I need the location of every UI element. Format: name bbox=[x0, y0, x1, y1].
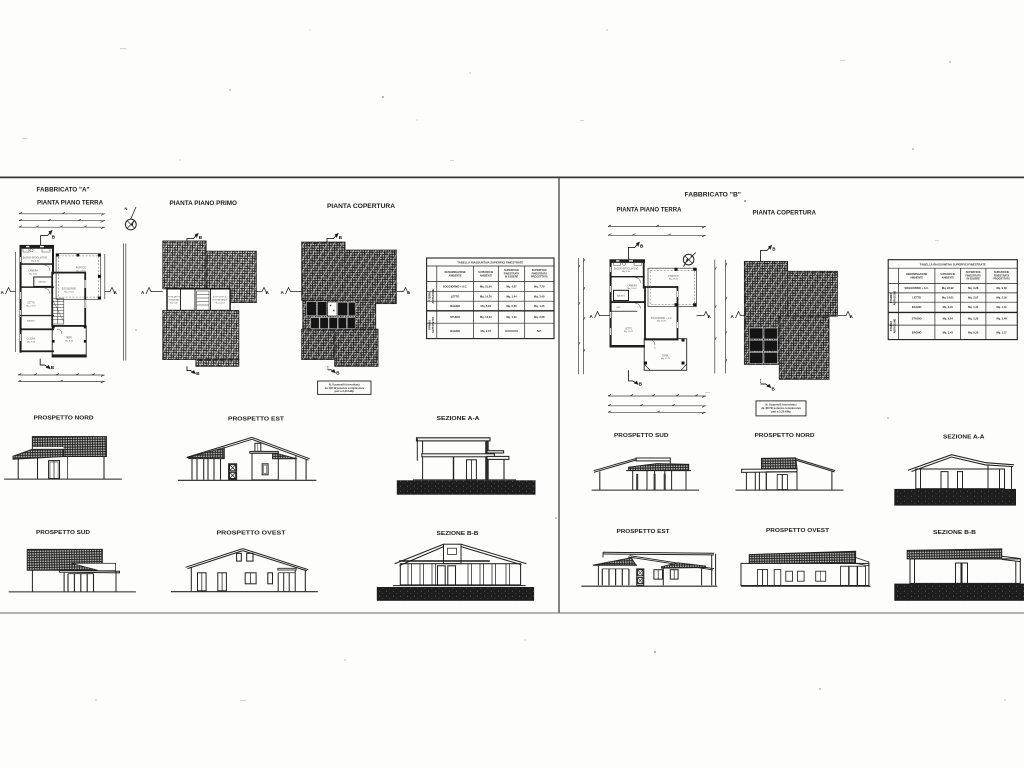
svg-text:LETTO: LETTO bbox=[625, 328, 633, 330]
svg-text:Mq. 1,45: Mq. 1,45 bbox=[534, 304, 545, 308]
svg-text:B: B bbox=[336, 370, 340, 375]
svg-text:Mq. 9,80: Mq. 9,80 bbox=[29, 273, 38, 275]
svg-text:Mq. 2,07: Mq. 2,07 bbox=[481, 329, 492, 333]
svg-text:Mq. 4,46: Mq. 4,46 bbox=[622, 271, 631, 273]
svg-text:PROSPETTO SUD: PROSPETTO SUD bbox=[36, 530, 90, 536]
svg-text:N. 8 pannelli fotovoltaici: N. 8 pannelli fotovoltaici bbox=[766, 403, 797, 407]
svg-text:Mq. 21,04: Mq. 21,04 bbox=[64, 291, 74, 293]
svg-text:Mq. 5,22: Mq. 5,22 bbox=[481, 304, 492, 308]
svg-text:B: B bbox=[196, 371, 200, 376]
svg-text:Mq. 2,40: Mq. 2,40 bbox=[534, 294, 545, 298]
svg-text:PROSPETTO SUD: PROSPETTO SUD bbox=[614, 433, 669, 439]
svg-text:B: B bbox=[52, 235, 56, 240]
svg-text:PORTICO: PORTICO bbox=[76, 268, 87, 270]
svg-text:ABITAZIONE: ABITAZIONE bbox=[893, 290, 896, 305]
svg-text:TERR.: TERR. bbox=[66, 338, 73, 340]
svg-text:A: A bbox=[141, 290, 145, 295]
svg-text:SPOGLIATOIO: SPOGLIATOIO bbox=[166, 296, 181, 299]
svg-text:PIANTA COPERTURA: PIANTA COPERTURA bbox=[753, 210, 817, 217]
svg-text:Mq. 1,17: Mq. 1,17 bbox=[996, 330, 1007, 334]
svg-text:SEZIONE B-B: SEZIONE B-B bbox=[933, 530, 976, 536]
svg-text:NON ABITABILE: NON ABITABILE bbox=[166, 299, 182, 302]
svg-text:A: A bbox=[266, 290, 270, 295]
svg-text:AMBIENTI: AMBIENTI bbox=[942, 276, 954, 279]
svg-text:BAGNO: BAGNO bbox=[450, 304, 460, 308]
svg-text:SOGGIORNO: SOGGIORNO bbox=[62, 289, 77, 291]
svg-text:SEZIONE B-B: SEZIONE B-B bbox=[437, 531, 479, 537]
svg-text:pari a 3,20 kWp: pari a 3,20 kWp bbox=[771, 409, 791, 413]
svg-text:CAMERA: CAMERA bbox=[627, 284, 637, 287]
svg-text:Mq. 1,19: Mq. 1,19 bbox=[506, 315, 517, 319]
svg-text:SOGGIORNO + A.C.: SOGGIORNO + A.C. bbox=[651, 317, 673, 320]
svg-text:A: A bbox=[407, 290, 411, 295]
svg-text:A: A bbox=[1, 290, 5, 295]
svg-text:FABBRICATO "B": FABBRICATO "B" bbox=[685, 192, 742, 199]
svg-text:Mq. 14,01: Mq. 14,01 bbox=[627, 288, 637, 290]
svg-text:Mq. 2,07: Mq. 2,07 bbox=[968, 296, 979, 300]
svg-text:Mq. 23,00: Mq. 23,00 bbox=[76, 270, 86, 272]
svg-text:Mq. 14,01: Mq. 14,01 bbox=[624, 331, 634, 333]
svg-text:Mq. 2,16: Mq. 2,16 bbox=[996, 296, 1007, 300]
svg-text:Mq. 1,41: Mq. 1,41 bbox=[996, 305, 1007, 309]
svg-text:Mq. 9,04: Mq. 9,04 bbox=[943, 317, 954, 321]
svg-text:Mq. 23,92: Mq. 23,92 bbox=[942, 286, 954, 290]
svg-text:B: B bbox=[772, 247, 776, 252]
svg-text:NON ABITABILE: NON ABITABILE bbox=[213, 299, 229, 302]
svg-text:IN ESSERE: IN ESSERE bbox=[505, 276, 519, 279]
svg-text:Mq. 9,40: Mq. 9,40 bbox=[170, 302, 179, 304]
svg-text:A: A bbox=[850, 314, 854, 319]
svg-text:Mq. 0,78: Mq. 0,78 bbox=[506, 304, 517, 308]
svg-text:N: N bbox=[125, 206, 128, 211]
svg-text:Mq. 1,44: Mq. 1,44 bbox=[506, 294, 517, 298]
svg-text:Mq. 4,46: Mq. 4,46 bbox=[943, 305, 954, 309]
svg-text:SOTTOTETTO: SOTTOTETTO bbox=[432, 317, 435, 333]
svg-text:da 400 W potenza complessiva: da 400 W potenza complessiva bbox=[761, 406, 801, 410]
svg-text:Mq. 1,41: Mq. 1,41 bbox=[968, 305, 979, 309]
svg-text:BAGNO: BAGNO bbox=[27, 320, 35, 323]
svg-text:CUCINA: CUCINA bbox=[27, 338, 36, 341]
svg-text:FABBRICATO "A": FABBRICATO "A" bbox=[37, 187, 90, 194]
svg-text:Mq. 4,30: Mq. 4,30 bbox=[31, 260, 40, 262]
svg-text:Mq. 14,01: Mq. 14,01 bbox=[942, 296, 954, 300]
svg-text:A: A bbox=[114, 290, 118, 295]
svg-text:BAGNO: BAGNO bbox=[450, 329, 460, 333]
svg-text:PIANTA PIANO PRIMO: PIANTA PIANO PRIMO bbox=[170, 200, 238, 207]
svg-text:PROSPETTO NORD: PROSPETTO NORD bbox=[34, 416, 94, 422]
svg-text:PROSPETTO NORD: PROSPETTO NORD bbox=[755, 433, 815, 439]
svg-text:Mq. 4,07: Mq. 4,07 bbox=[506, 285, 517, 289]
svg-text:AMBIENTE: AMBIENTE bbox=[910, 276, 923, 279]
svg-text:PROSPETTO EST: PROSPETTO EST bbox=[228, 417, 285, 423]
svg-text:Mq. 7,79: Mq. 7,79 bbox=[534, 285, 545, 289]
svg-text:SOGGIORNO + A.C.: SOGGIORNO + A.C. bbox=[905, 286, 930, 290]
svg-text:PROGETTATA: PROGETTATA bbox=[531, 276, 548, 279]
svg-text:BAGNO-SPOGLIATOIO: BAGNO-SPOGLIATOIO bbox=[23, 257, 48, 260]
svg-text:BAGNO: BAGNO bbox=[912, 330, 922, 334]
svg-text:A: A bbox=[281, 290, 285, 295]
svg-text:B: B bbox=[51, 365, 55, 370]
svg-text:B: B bbox=[640, 243, 644, 248]
svg-text:STUDIO: STUDIO bbox=[912, 317, 922, 321]
svg-text:BAGNO: BAGNO bbox=[617, 294, 625, 297]
svg-text:TERR.: TERR. bbox=[662, 355, 669, 357]
svg-text:Mq. 12,70: Mq. 12,70 bbox=[661, 358, 671, 360]
svg-text:CAMERA: CAMERA bbox=[28, 270, 38, 273]
svg-text:PIANTA PIANO TERRA: PIANTA PIANO TERRA bbox=[617, 207, 683, 214]
svg-text:TABELLA RIASSUNTIVA SUPERFICI: TABELLA RIASSUNTIVA SUPERFICI FINESTRATE bbox=[920, 262, 986, 266]
svg-text:RIP.: RIP. bbox=[617, 307, 621, 309]
svg-text:Mq. 14,76: Mq. 14,76 bbox=[26, 305, 36, 307]
svg-text:PORTICO: PORTICO bbox=[668, 276, 679, 278]
svg-text:Mq. 18,40: Mq. 18,40 bbox=[669, 279, 679, 281]
svg-text:B: B bbox=[772, 387, 776, 392]
svg-text:Mq. 9,03: Mq. 9,03 bbox=[996, 286, 1007, 290]
svg-text:BAGNO-SPOGLIATOIO: BAGNO-SPOGLIATOIO bbox=[614, 267, 639, 270]
svg-text:SOTTOTETTO: SOTTOTETTO bbox=[213, 297, 228, 299]
svg-text:ABITAZIONE: ABITAZIONE bbox=[432, 289, 435, 304]
svg-text:BAGNO: BAGNO bbox=[912, 305, 922, 309]
svg-text:PROSPETTO OVEST: PROSPETTO OVEST bbox=[766, 528, 829, 534]
svg-text:A: A bbox=[708, 314, 712, 319]
svg-text:SEZIONE A-A: SEZIONE A-A bbox=[943, 434, 985, 440]
svg-text:Mq. 3,28: Mq. 3,28 bbox=[968, 286, 979, 290]
svg-text:Mq. 21,04: Mq. 21,04 bbox=[480, 285, 492, 289]
svg-text:Mq. 2,28: Mq. 2,28 bbox=[534, 315, 545, 319]
svg-text:N. 8 pannelli fotovoltaici: N. 8 pannelli fotovoltaici bbox=[329, 382, 360, 386]
svg-text:da 400 W potenza complessiva: da 400 W potenza complessiva bbox=[325, 386, 365, 390]
svg-text:PROSPETTO OVEST: PROSPETTO OVEST bbox=[217, 531, 287, 537]
svg-text:Mq. 9,60: Mq. 9,60 bbox=[27, 341, 36, 343]
svg-text:PROGETTATA: PROGETTATA bbox=[993, 278, 1010, 281]
svg-text:N.P.: N.P. bbox=[537, 329, 542, 333]
svg-text:STUDIO: STUDIO bbox=[450, 315, 460, 319]
svg-text:SOGGIORNO + A.C.: SOGGIORNO + A.C. bbox=[443, 285, 468, 289]
svg-text:PIANTA PIANO TERRA: PIANTA PIANO TERRA bbox=[37, 200, 104, 207]
svg-text:Mq. 8,30: Mq. 8,30 bbox=[65, 340, 74, 342]
svg-text:Mq. 3,43: Mq. 3,43 bbox=[943, 330, 954, 334]
svg-text:B: B bbox=[639, 382, 643, 387]
svg-text:ABITAZIONE: ABITAZIONE bbox=[893, 318, 896, 333]
svg-text:PIANTA COPERTURA: PIANTA COPERTURA bbox=[327, 203, 396, 210]
svg-text:Mq. 13,53: Mq. 13,53 bbox=[216, 302, 226, 304]
svg-text:Mq. 0,36: Mq. 0,36 bbox=[968, 330, 979, 334]
svg-text:PROSPETTO EST: PROSPETTO EST bbox=[617, 529, 670, 535]
svg-text:LETTO: LETTO bbox=[912, 296, 920, 300]
svg-text:B: B bbox=[339, 235, 343, 240]
svg-text:Mq. 13,53: Mq. 13,53 bbox=[480, 315, 492, 319]
svg-text:B: B bbox=[199, 235, 203, 240]
svg-text:IN ESSERE: IN ESSERE bbox=[967, 278, 981, 281]
svg-text:TABELLA RIASSUNTIVA SUPERFICI: TABELLA RIASSUNTIVA SUPERFICI FINESTRATE bbox=[457, 260, 523, 264]
svg-text:AMBIENTI: AMBIENTI bbox=[480, 274, 492, 277]
svg-text:LETTO: LETTO bbox=[451, 294, 459, 298]
svg-text:SEZIONE A-A: SEZIONE A-A bbox=[437, 416, 481, 422]
svg-text:BAGNO: BAGNO bbox=[39, 281, 47, 284]
svg-text:Mq. 23,92: Mq. 23,92 bbox=[657, 321, 667, 323]
svg-text:AMBIENTE: AMBIENTE bbox=[449, 274, 462, 277]
svg-text:Mq. 14,76: Mq. 14,76 bbox=[480, 294, 492, 298]
svg-text:A: A bbox=[731, 314, 735, 319]
svg-text:pari a 3,20 kWp: pari a 3,20 kWp bbox=[335, 389, 355, 393]
svg-text:Mq. 1,28: Mq. 1,28 bbox=[968, 317, 979, 321]
svg-text:A: A bbox=[590, 314, 594, 319]
svg-text:Mq. 2,48: Mq. 2,48 bbox=[996, 317, 1007, 321]
svg-text:LETTO: LETTO bbox=[27, 303, 35, 305]
